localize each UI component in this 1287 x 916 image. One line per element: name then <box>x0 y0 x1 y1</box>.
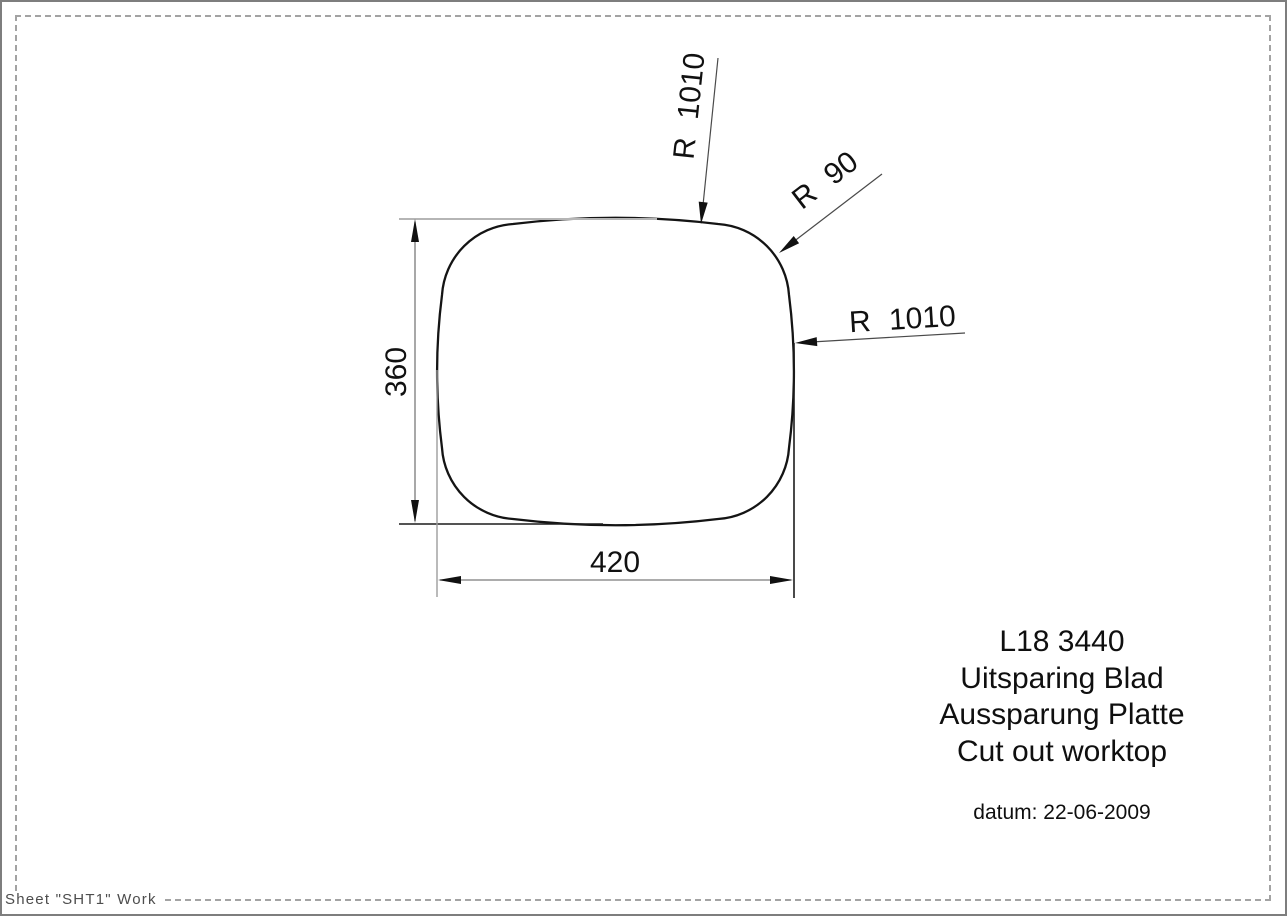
sheet-name-label: Sheet "SHT1" Work <box>2 891 165 909</box>
width-dim-arrow-left <box>438 576 461 584</box>
drawing-sheet: 360 420 R 1010 R 90 R 1010 L18 3440 Uits… <box>0 0 1287 916</box>
title-block: L18 3440 Uitsparing Blad Aussparung Plat… <box>882 624 1242 825</box>
title-dutch: Uitsparing Blad <box>882 661 1242 698</box>
width-dim-arrow-right <box>770 576 793 584</box>
radius-right-label: R 1010 <box>848 300 957 339</box>
radius-top-label: R 1010 <box>668 51 712 161</box>
height-dimension-text: 360 <box>380 347 413 397</box>
title-model-code: L18 3440 <box>882 624 1242 661</box>
leader-arrow-radius-right <box>795 337 817 346</box>
cutout-outline <box>437 218 794 525</box>
height-dim-arrow-down <box>411 500 419 523</box>
leader-arrow-radius-corner <box>779 236 799 253</box>
leader-arrow-radius-top <box>699 202 708 224</box>
title-english: Cut out worktop <box>882 734 1242 771</box>
title-german: Aussparung Platte <box>882 697 1242 734</box>
width-dimension-text: 420 <box>590 546 640 579</box>
height-dim-arrow-up <box>411 219 419 242</box>
radius-corner-label: R 90 <box>786 145 864 216</box>
date-label: datum: 22-06-2009 <box>882 801 1242 825</box>
